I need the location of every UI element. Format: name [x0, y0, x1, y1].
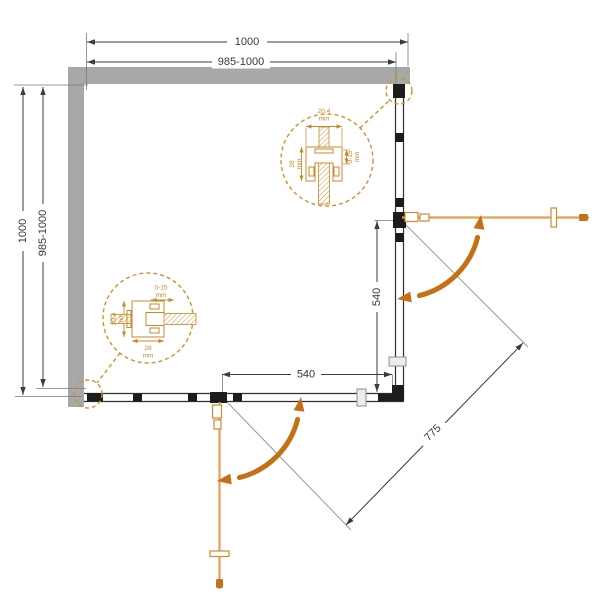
profile-clip-top [150, 304, 159, 309]
hinge-right-upper [396, 198, 404, 207]
support-bracket-right [389, 357, 406, 366]
detail-leader-line [97, 353, 120, 383]
detail-callout-top-right: 20,4 mm 28 mm 0-15 mm [281, 78, 412, 206]
door-right-open [402, 208, 589, 227]
door-right-end-profile [579, 214, 588, 221]
profile-washer [315, 149, 333, 153]
tr-profile-depth-value: 28 [289, 160, 296, 168]
detail-callout-bottom-left: 0-15 mm 20,4 mm 28 mm [74, 273, 196, 408]
door-bottom-open [210, 402, 229, 589]
tr-adjustment-value: 0-15 [347, 150, 354, 163]
height-total-label: 1000 [17, 219, 29, 243]
bl-profile-depth-unit: mm [143, 353, 154, 360]
swing-arrow-right-icon [397, 215, 484, 302]
hinge-right-lower [396, 233, 404, 242]
clamp-bottom [133, 394, 142, 402]
tr-profile-depth-unit: mm [296, 159, 303, 170]
tr-profile-width-unit: mm [319, 116, 330, 123]
dimension-diagonal-opening: 775 [346, 343, 523, 525]
hinge-bottom-left-part [188, 393, 197, 401]
corner-fitting-horizontal [378, 394, 392, 401]
dimension-height-adjustable: 985-1000 [37, 87, 50, 387]
clamp-right [395, 133, 404, 142]
tr-adjustment-unit: mm [354, 152, 361, 163]
walls [68, 67, 410, 407]
door-bottom-45deg-extension [227, 402, 351, 530]
wall-top [68, 67, 410, 84]
door-bottom-hinge-fitting [213, 405, 222, 418]
width-total-label: 1000 [235, 36, 259, 48]
dimension-bottom-door: 540 [222, 368, 392, 381]
hinge-right-pivot [393, 212, 406, 228]
bl-profile-depth-value: 28 [144, 345, 152, 352]
dimension-right-door: 540 [371, 221, 384, 392]
door-right-hinge-fitting-2 [420, 214, 429, 221]
wall-screw-section [319, 127, 329, 147]
height-adjustable-label: 985-1000 [37, 210, 49, 257]
hinge-bottom-pivot [210, 392, 227, 403]
wall-left [68, 67, 84, 407]
wall-profile-connector-left [87, 393, 103, 401]
profile-clip-left [309, 167, 314, 176]
shower-enclosure-dimension-drawing: 1000 985-1000 1000 985-1000 540 540 [0, 0, 600, 600]
support-bracket-bottom [357, 389, 366, 406]
plan-drawing: 1000 985-1000 1000 985-1000 540 540 [0, 0, 600, 600]
detail-leader-line [360, 100, 390, 128]
width-adjustable-label: 985-1000 [218, 56, 265, 68]
glass-section [164, 314, 196, 325]
dimension-width-adjustable: 985-1000 [87, 56, 396, 69]
bl-profile-width-unit: mm [118, 314, 125, 325]
tr-profile-width-value: 20,4 [318, 108, 331, 115]
door-right-hinge-fitting [405, 213, 418, 222]
hardware-fittings [87, 84, 406, 403]
door-right-handle [551, 208, 557, 227]
glass-section [319, 163, 330, 204]
profile-clip-bottom [150, 328, 159, 333]
door-right-45deg-extension [401, 220, 528, 347]
dimension-width-total: 1000 [87, 36, 408, 49]
door-bottom-hinge-fitting-2 [214, 420, 221, 429]
corner-fitting-vertical [392, 385, 404, 401]
door-bottom-handle [210, 551, 229, 557]
dimension-height-total: 1000 [17, 87, 30, 395]
bl-adjustment-value: 0-15 [154, 285, 167, 292]
bl-profile-width-value: 20,4 [111, 312, 118, 325]
bl-adjustment-unit: mm [156, 292, 167, 299]
bottom-door-label: 540 [297, 369, 315, 381]
right-door-label: 540 [371, 288, 383, 306]
door-bottom-end-profile [216, 579, 223, 588]
hinge-bottom-right-part [233, 393, 242, 401]
swing-arrow-bottom-icon [217, 397, 304, 484]
profile-clip-right [334, 167, 339, 176]
wall-profile-connector-top [393, 84, 405, 98]
glass-panels [84, 84, 406, 406]
